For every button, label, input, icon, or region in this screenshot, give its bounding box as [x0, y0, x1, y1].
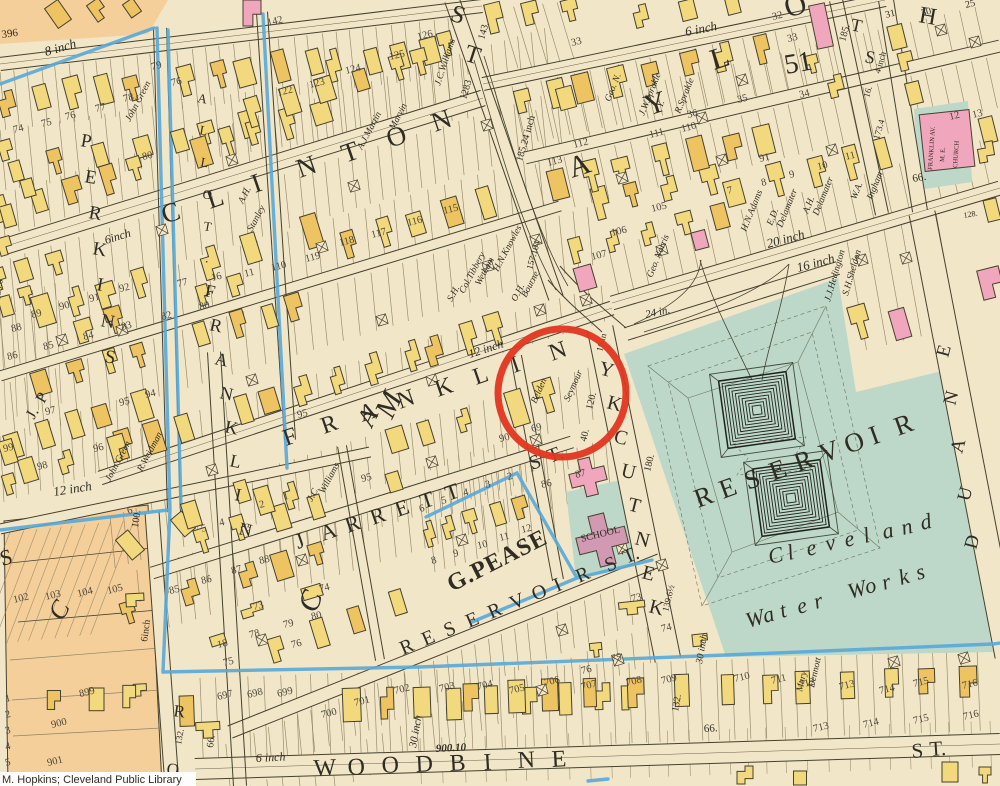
svg-text:B: B — [449, 750, 466, 777]
svg-text:O: O — [347, 754, 366, 781]
svg-text:E: E — [551, 746, 567, 773]
svg-text:66.: 66. — [704, 722, 719, 735]
svg-text:396: 396 — [1, 27, 20, 41]
svg-text:N: N — [517, 747, 536, 774]
svg-text:66.: 66. — [911, 171, 927, 185]
svg-text:S: S — [911, 738, 924, 763]
svg-text:51: 51 — [782, 46, 815, 81]
svg-text:66.: 66. — [205, 735, 218, 749]
svg-text:W: W — [313, 755, 337, 782]
svg-text:6 inch: 6 inch — [255, 749, 285, 765]
svg-text:O: O — [381, 752, 400, 779]
svg-text:I: I — [483, 750, 492, 776]
svg-text:M. Hopkins; Cleveland Public L: M. Hopkins; Cleveland Public Library — [2, 774, 182, 786]
svg-text:D: D — [415, 751, 434, 778]
svg-text:T.: T. — [929, 736, 947, 761]
svg-text:M. E.: M. E. — [939, 147, 947, 162]
svg-text:900.10: 900.10 — [436, 741, 467, 755]
